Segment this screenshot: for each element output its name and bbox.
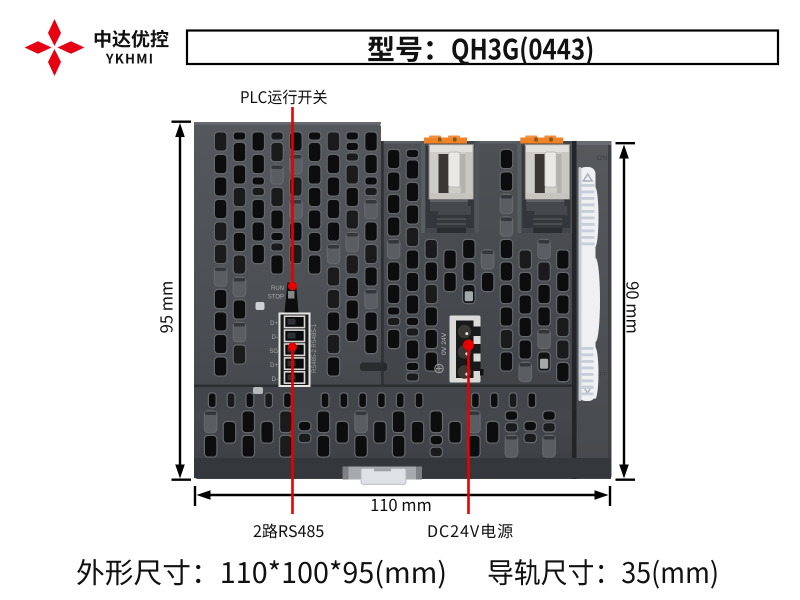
- svg-text:0V 24V: 0V 24V: [441, 332, 448, 355]
- svg-text:RS485-2 RS485-1: RS485-2 RS485-1: [312, 323, 318, 373]
- svg-text:D+: D+: [270, 321, 278, 327]
- svg-text:D-: D-: [272, 377, 278, 383]
- svg-text:D+: D+: [270, 363, 278, 369]
- svg-text:RUN: RUN: [271, 286, 284, 292]
- svg-text:STOP: STOP: [268, 295, 284, 301]
- svg-text:SG: SG: [269, 349, 278, 355]
- svg-text:D-: D-: [272, 335, 278, 341]
- svg-text:ON: ON: [597, 155, 608, 162]
